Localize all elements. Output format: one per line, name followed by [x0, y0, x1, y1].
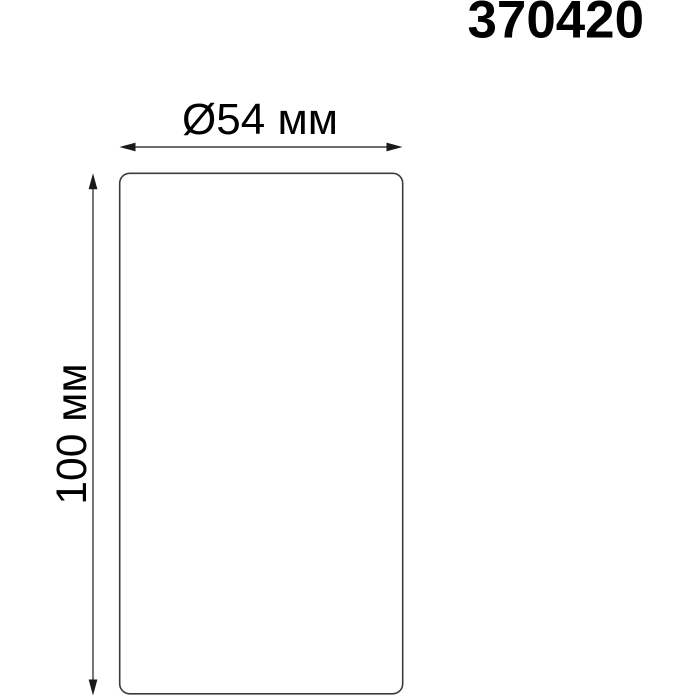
svg-text:100 мм: 100 мм: [49, 363, 96, 504]
svg-text:Ø54 мм: Ø54 мм: [182, 95, 338, 144]
svg-text:370420: 370420: [468, 0, 645, 50]
